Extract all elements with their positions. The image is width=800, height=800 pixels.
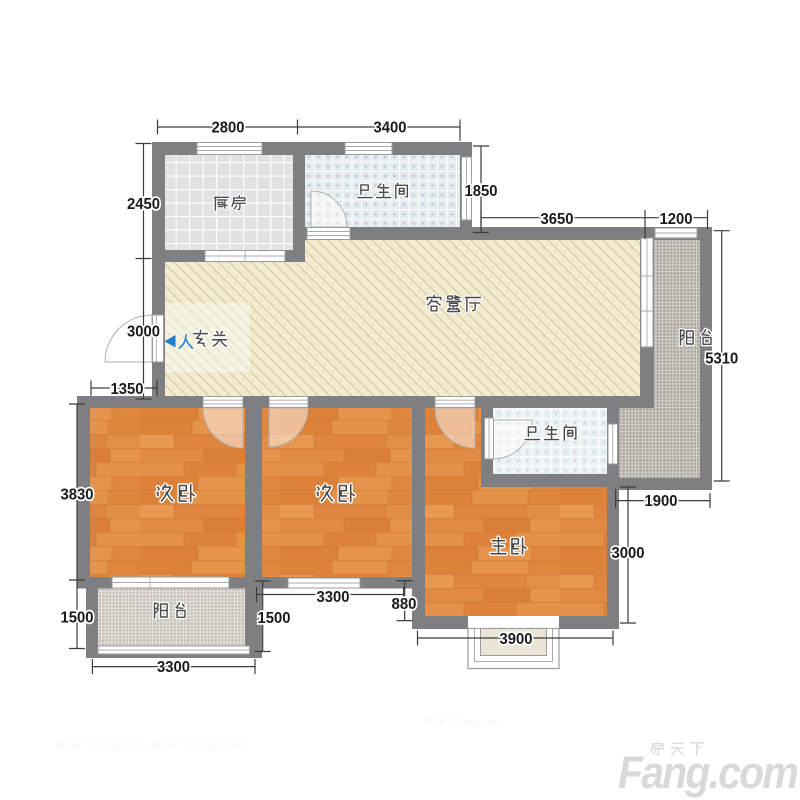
svg-text:3900: 3900 [500,631,533,648]
svg-text:fang.com: fang.com [97,738,146,752]
svg-text:1900: 1900 [645,493,678,510]
svg-text:3300: 3300 [317,589,350,606]
svg-text:5310: 5310 [705,351,738,368]
svg-text:3830: 3830 [61,487,94,504]
svg-text:fang.com: fang.com [461,717,502,728]
svg-text:3000: 3000 [127,324,160,341]
svg-text:1350: 1350 [111,381,144,398]
svg-text:1850: 1850 [465,183,498,200]
svg-text:880: 880 [392,596,417,613]
svg-text:Fang.com: Fang.com [618,747,798,798]
svg-text:fang.com: fang.com [194,738,243,752]
svg-text:2800: 2800 [212,120,245,137]
svg-text:1500: 1500 [258,610,291,627]
svg-text:3650: 3650 [541,211,574,228]
svg-text:1200: 1200 [660,211,693,228]
svg-text:1500: 1500 [61,610,94,627]
svg-text:3000: 3000 [612,545,645,562]
svg-text:3400: 3400 [374,120,407,137]
svg-text:3300: 3300 [157,659,190,676]
svg-text:2450: 2450 [127,196,160,213]
